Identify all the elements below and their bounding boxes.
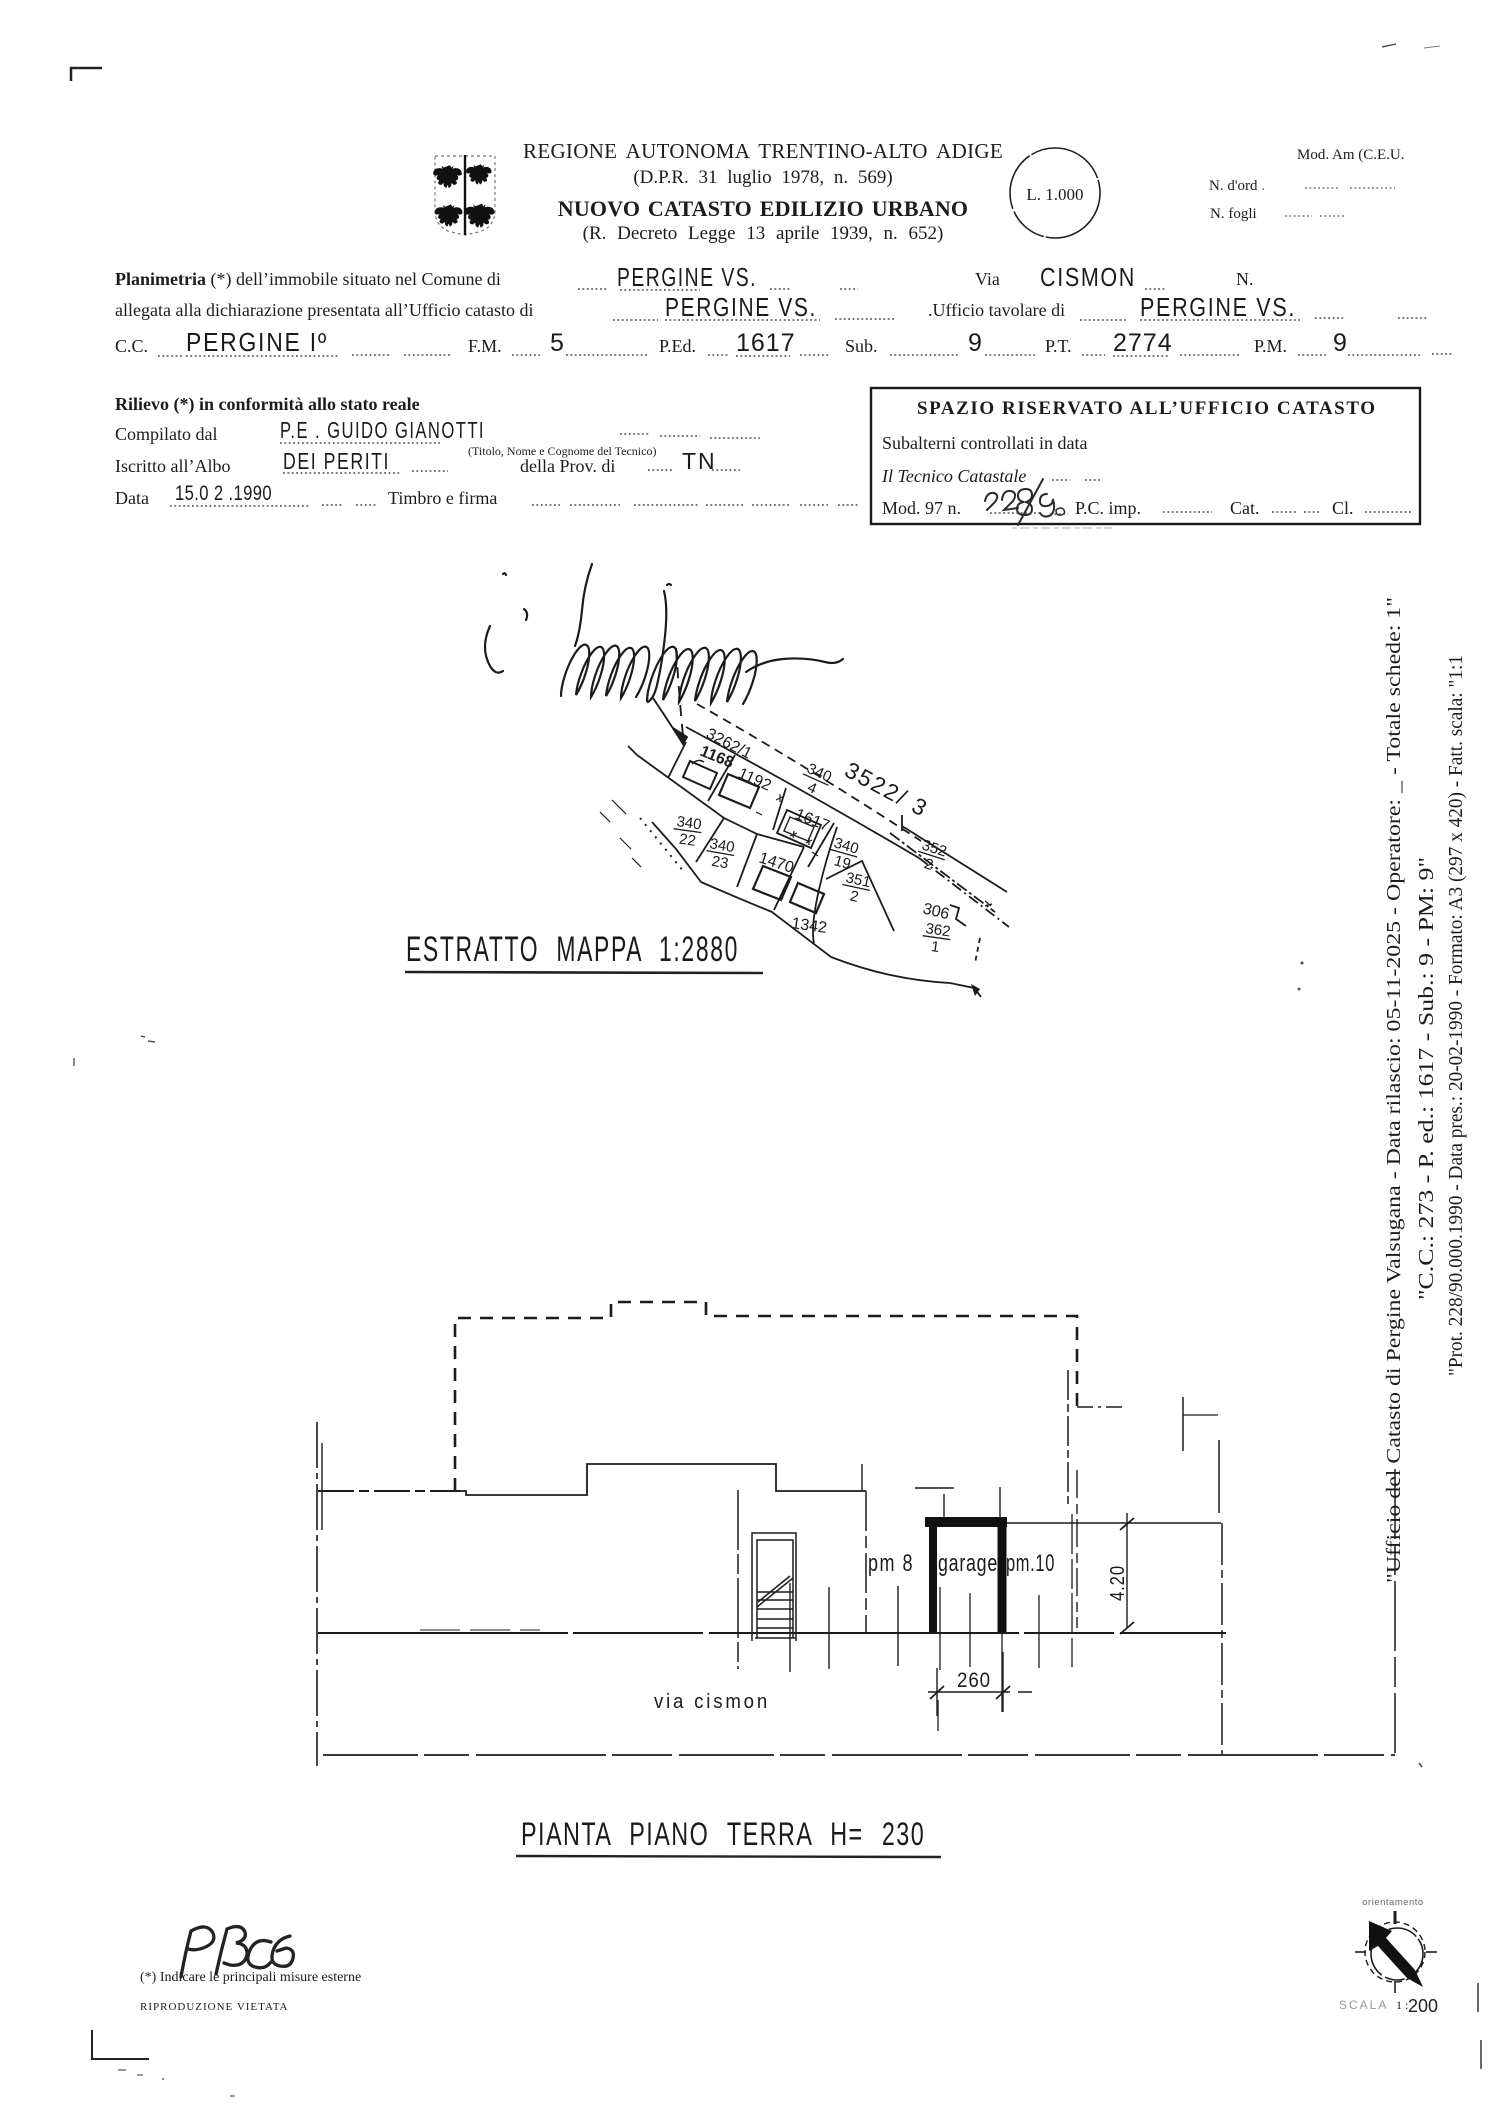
svg-text:1 :: 1 :: [1396, 1998, 1408, 2012]
svg-text:N. fogli: N. fogli: [1210, 206, 1257, 222]
svg-text:15.0 2 .1990: 15.0 2 .1990: [175, 482, 272, 505]
svg-text:Planimetria (*) dell’immobile: Planimetria (*) dell’immobile situato ne…: [115, 269, 501, 290]
svg-text:"Ufficio del Catasto di Pergin: "Ufficio del Catasto di Pergine Valsugan…: [1383, 597, 1405, 1583]
svg-text:(R. Decreto Legge 13 aprile 19: (R. Decreto Legge 13 aprile 1939, n. 652…: [583, 223, 944, 244]
svg-text:PIANTA PIANO TERRA H= 230: PIANTA PIANO TERRA H= 230: [521, 1816, 925, 1851]
svg-text:via cismon: via cismon: [654, 1691, 770, 1713]
svg-text:SPAZIO RISERVATO ALL’UFFICIO: SPAZIO RISERVATO ALL’UFFICIO CATASTO: [917, 398, 1375, 419]
svg-text:Cl.: Cl.: [1332, 498, 1354, 518]
svg-text:260: 260: [957, 1669, 991, 1692]
svg-text:pm 8: pm 8: [868, 1550, 914, 1577]
svg-text:N.: N.: [1236, 269, 1254, 289]
svg-text:P.M.: P.M.: [1254, 336, 1287, 356]
svg-text:P.T.: P.T.: [1045, 336, 1072, 356]
svg-text:Timbro e firma: Timbro e firma: [388, 488, 497, 508]
svg-text:200: 200: [1408, 1996, 1438, 2016]
svg-text:L. 1.000: L. 1.000: [1026, 185, 1083, 204]
svg-text:TN: TN: [682, 448, 717, 474]
svg-text:.Ufficio tavolare di: .Ufficio tavolare di: [928, 300, 1065, 320]
svg-text:5: 5: [550, 329, 564, 357]
svg-text:4.20: 4.20: [1107, 1565, 1129, 1601]
svg-text:(D.P.R. 31 luglio 1978, n. 569: (D.P.R. 31 luglio 1978, n. 569): [633, 167, 892, 188]
svg-text:Cat.: Cat.: [1230, 498, 1260, 518]
svg-text:C.C.: C.C.: [115, 336, 148, 356]
svg-text:23: 23: [710, 853, 729, 873]
svg-text:"Prot. 228/90.000.1990 - Data: "Prot. 228/90.000.1990 - Data pres.: 20-…: [1445, 655, 1467, 1376]
svg-text:Subalterni controllati in data: Subalterni controllati in data: [882, 433, 1087, 453]
svg-text:P.E . GUIDO GIANOTTI: P.E . GUIDO GIANOTTI: [280, 417, 485, 443]
svg-text:ESTRATTO MAPPA 1:2880: ESTRATTO MAPPA 1:2880: [406, 930, 739, 969]
svg-text:della Prov. di: della Prov. di: [520, 456, 615, 476]
svg-text:orientamento: orientamento: [1362, 1897, 1423, 1908]
svg-text:allegata alla dichiarazione pr: allegata alla dichiarazione presentata a…: [115, 300, 533, 320]
svg-text:(*) Indicare le principali: (*) Indicare le principali misure estern…: [140, 1970, 361, 1985]
svg-text:Il Tecnico Catastale: Il Tecnico Catastale: [881, 466, 1026, 486]
svg-text:NUOVO CATASTO EDILIZIO URBANO: NUOVO CATASTO EDILIZIO URBANO: [558, 196, 969, 221]
svg-text:Rilievo (*) in conformità allo: Rilievo (*) in conformità allo stato rea…: [115, 394, 420, 415]
svg-text:garage: garage: [938, 1550, 998, 1577]
svg-text:N. d'ord .: N. d'ord .: [1209, 178, 1265, 194]
svg-text:Data: Data: [115, 488, 149, 508]
svg-text:P.C. imp.: P.C. imp.: [1075, 498, 1141, 518]
svg-text:RIPRODUZIONE VIETATA: RIPRODUZIONE VIETATA: [140, 2001, 289, 2013]
svg-text:2774: 2774: [1113, 329, 1173, 357]
svg-text:Via: Via: [975, 269, 1000, 289]
svg-text:F.M.: F.M.: [468, 336, 502, 356]
svg-text:P.Ed.: P.Ed.: [659, 336, 696, 356]
svg-text:SCALA: SCALA: [1339, 1998, 1388, 2012]
svg-text:PERGINE Iº: PERGINE Iº: [186, 327, 328, 357]
svg-text:9: 9: [1333, 329, 1347, 357]
svg-text:Sub.: Sub.: [845, 336, 878, 356]
svg-text:PERGINE VS.: PERGINE VS.: [1140, 292, 1296, 322]
svg-text:PERGINE VS.: PERGINE VS.: [617, 262, 757, 292]
svg-text:1617: 1617: [736, 329, 796, 357]
svg-text:9: 9: [968, 329, 982, 357]
svg-text:Mod. 97 n.: Mod. 97 n.: [882, 498, 961, 518]
svg-text:Compilato dal: Compilato dal: [115, 424, 218, 444]
svg-text:CISMON: CISMON: [1040, 262, 1136, 292]
svg-text:REGIONE AUTONOMA TRENTINO-ALTO: REGIONE AUTONOMA TRENTINO-ALTO ADIGE: [523, 139, 1003, 163]
svg-text:"C.C.: 273 - P. ed.: 1617 - Su: "C.C.: 273 - P. ed.: 1617 - Sub.: 9 - PM…: [1414, 857, 1438, 1300]
svg-text:DEI PERITI: DEI PERITI: [283, 448, 390, 474]
svg-text:Iscritto all’Albo: Iscritto all’Albo: [115, 456, 230, 476]
svg-text:pm.10: pm.10: [1006, 1550, 1055, 1577]
svg-text:22: 22: [678, 831, 697, 850]
svg-text:Mod. Am (C.E.U.: Mod. Am (C.E.U.: [1297, 147, 1405, 163]
svg-text:PERGINE VS.: PERGINE VS.: [665, 292, 817, 322]
